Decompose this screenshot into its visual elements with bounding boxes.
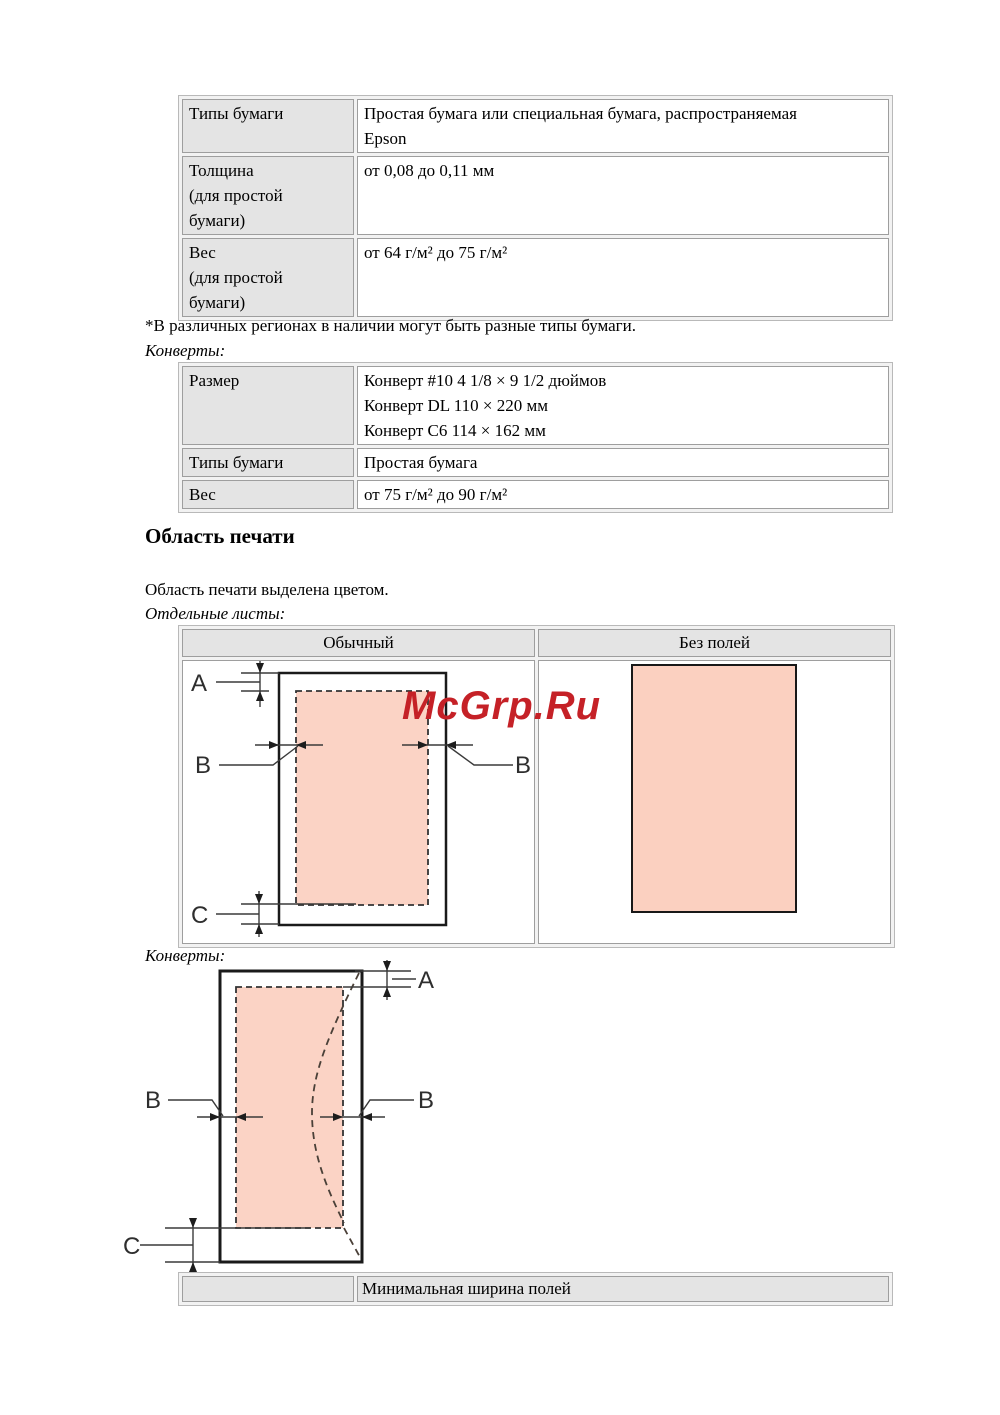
label-line: Типы бумаги	[189, 450, 347, 475]
borderless-print-area	[631, 664, 797, 913]
row-label: Типы бумаги	[182, 448, 354, 477]
arrowhead	[383, 987, 391, 997]
paper-spec-table: Типы бумаги Простая бумага или специальн…	[178, 95, 893, 321]
watermark: McGrp.Ru	[402, 684, 601, 729]
label-line: Вес	[189, 482, 347, 507]
value-line: Epson	[364, 126, 882, 151]
section-heading: Область печати	[145, 524, 295, 549]
margin-label-a: A	[191, 670, 207, 697]
envelope-print-area-diagram: A B B C	[115, 960, 467, 1275]
row-label: Толщина (для простой бумаги)	[182, 156, 354, 235]
envelopes-label: Конверты:	[145, 339, 225, 363]
arrowhead	[255, 924, 263, 934]
table-row: Минимальная ширина полей	[182, 1276, 889, 1302]
row-value: от 75 г/м² до 90 г/м²	[357, 480, 889, 509]
margin-label-b-right: B	[418, 1087, 434, 1114]
arrowhead	[256, 691, 264, 701]
arrowhead	[383, 961, 391, 971]
margin-label-b-left: B	[145, 1087, 161, 1114]
row-value: Простая бумага или специальная бумага, р…	[357, 99, 889, 153]
envelope-spec-table: Размер Конверт #10 4 1/8 × 9 1/2 дюймов …	[178, 362, 893, 513]
label-line: Толщина	[189, 158, 347, 183]
row-label: Вес	[182, 480, 354, 509]
value-line: Конверт DL 110 × 220 мм	[364, 393, 882, 418]
value-line: Конверт #10 4 1/8 × 9 1/2 дюймов	[364, 368, 882, 393]
row-label: Размер	[182, 366, 354, 445]
label-line: бумаги)	[189, 290, 347, 315]
arrowhead	[256, 663, 264, 673]
min-margins-table: Минимальная ширина полей	[178, 1272, 893, 1306]
value-line: от 0,08 до 0,11 мм	[364, 158, 882, 183]
table-row: Типы бумаги Простая бумага или специальн…	[182, 99, 889, 153]
label-line: Размер	[189, 368, 347, 393]
table-row: Размер Конверт #10 4 1/8 × 9 1/2 дюймов …	[182, 366, 889, 445]
print-area-table: Обычный Без полей A	[178, 625, 895, 948]
row-value: Конверт #10 4 1/8 × 9 1/2 дюймов Конверт…	[357, 366, 889, 445]
row-value: от 0,08 до 0,11 мм	[357, 156, 889, 235]
label-line: бумаги)	[189, 208, 347, 233]
row-label: Вес (для простой бумаги)	[182, 238, 354, 317]
table-row: Типы бумаги Простая бумага	[182, 448, 889, 477]
column-header-borderless: Без полей	[538, 629, 891, 657]
margin-label-a: A	[418, 967, 434, 994]
margin-label-b-right: B	[515, 752, 531, 779]
min-margins-header: Минимальная ширина полей	[357, 1276, 889, 1302]
value-line: Простая бумага	[364, 450, 882, 475]
arrowhead	[255, 894, 263, 904]
footnote: *В различных регионах в наличии могут бы…	[145, 314, 636, 338]
table-row: Вес от 75 г/м² до 90 г/м²	[182, 480, 889, 509]
table-row: Обычный Без полей	[182, 629, 891, 657]
margin-label-b-left: B	[195, 752, 211, 779]
table-row: Вес (для простой бумаги) от 64 г/м² до 7…	[182, 238, 889, 317]
arrowhead	[269, 741, 279, 749]
section-intro: Область печати выделена цветом.	[145, 578, 389, 602]
arrowhead	[189, 1218, 197, 1228]
print-area	[236, 987, 343, 1228]
value-line: Простая бумага или специальная бумага, р…	[364, 101, 882, 126]
label-line: (для простой	[189, 265, 347, 290]
label-line: Вес	[189, 240, 347, 265]
label-line: (для простой	[189, 183, 347, 208]
document-page: Типы бумаги Простая бумага или специальн…	[0, 0, 1000, 1415]
column-header-normal: Обычный	[182, 629, 535, 657]
row-value: от 64 г/м² до 75 г/м²	[357, 238, 889, 317]
empty-stub-cell	[182, 1276, 354, 1302]
row-label: Типы бумаги	[182, 99, 354, 153]
label-line: Типы бумаги	[189, 101, 347, 126]
row-value: Простая бумага	[357, 448, 889, 477]
value-line: от 64 г/м² до 75 г/м²	[364, 240, 882, 265]
table-row: Толщина (для простой бумаги) от 0,08 до …	[182, 156, 889, 235]
value-line: Конверт C6 114 × 162 мм	[364, 418, 882, 443]
margin-label-c: C	[191, 902, 208, 929]
value-line: от 75 г/м² до 90 г/м²	[364, 482, 882, 507]
sheets-label: Отдельные листы:	[145, 602, 285, 626]
arrowhead	[189, 1262, 197, 1272]
margin-label-c: C	[123, 1233, 140, 1260]
